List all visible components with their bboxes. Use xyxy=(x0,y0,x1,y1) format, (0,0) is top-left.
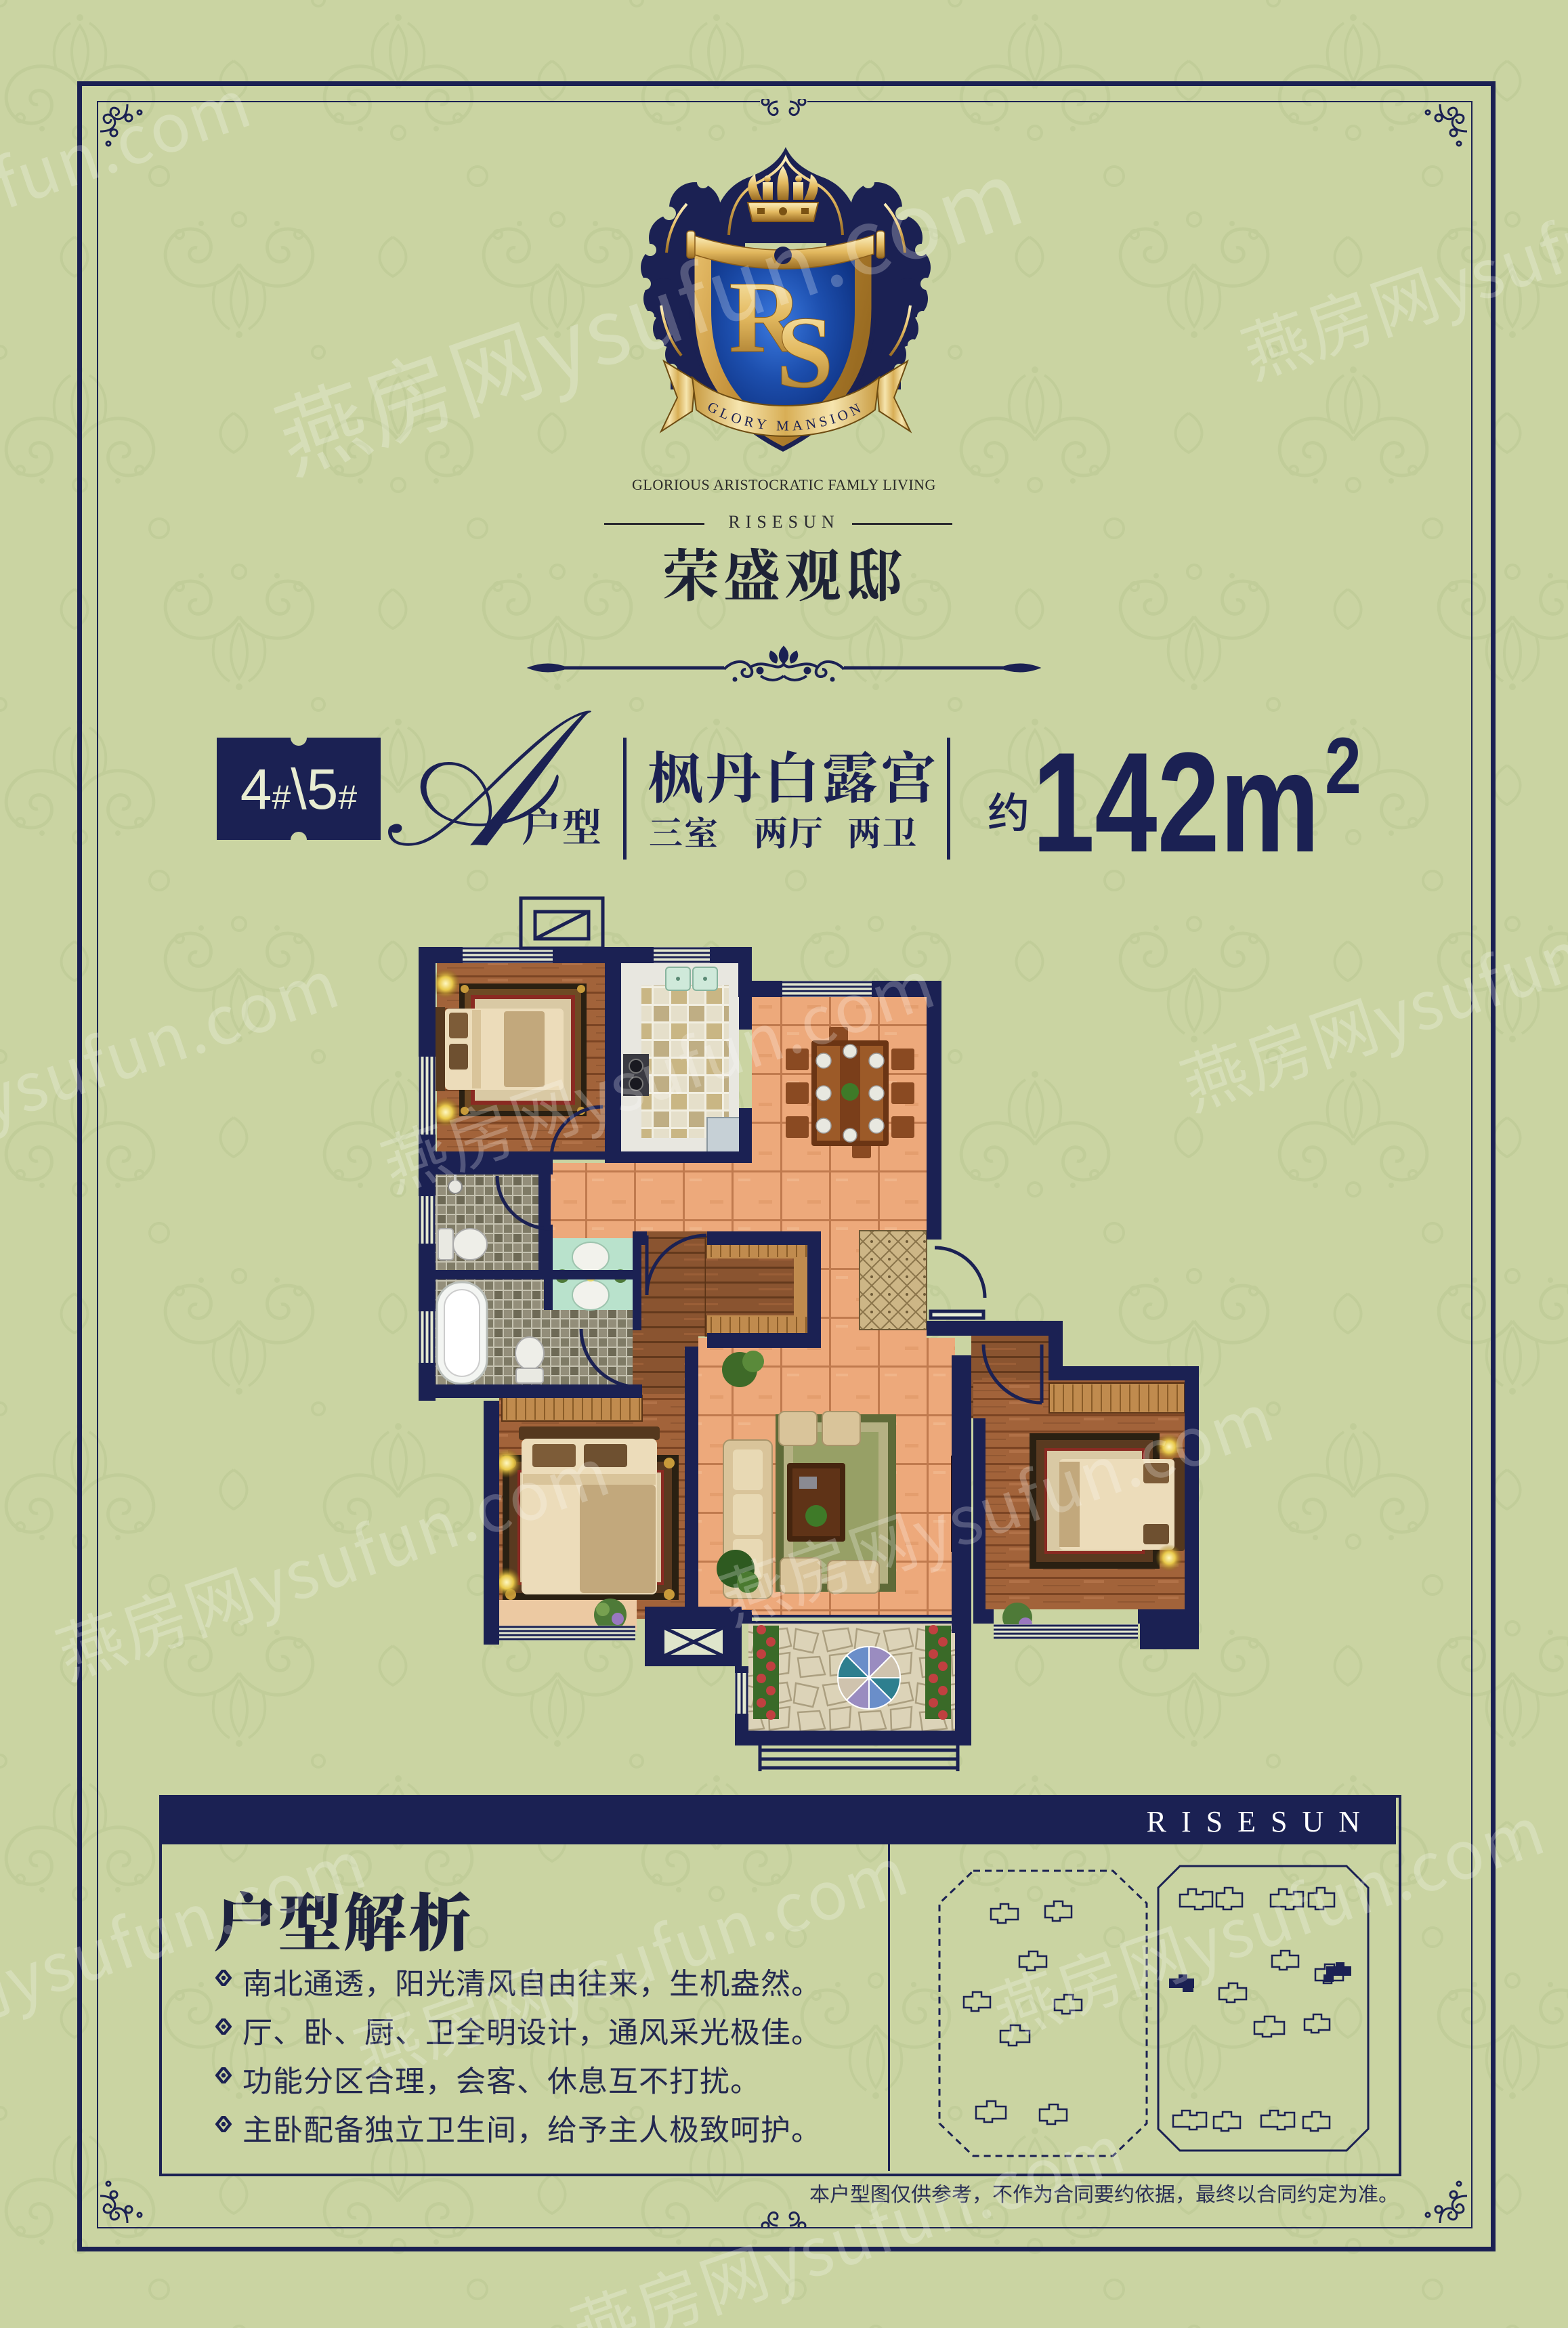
svg-text:4#\5#: 4#\5# xyxy=(240,757,358,821)
svg-text:S: S xyxy=(776,295,834,409)
